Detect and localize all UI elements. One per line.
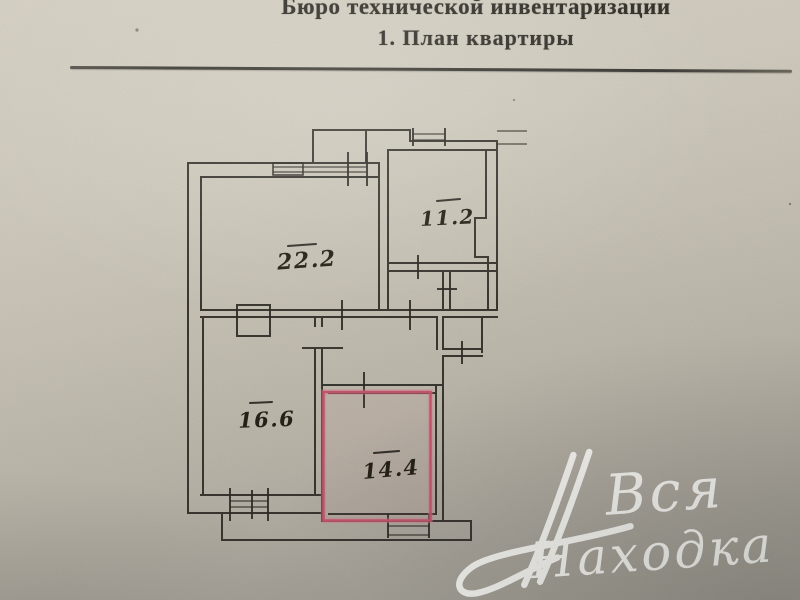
paper-grain-overlay [0, 0, 800, 600]
scanned-page: Бюро технической инвентаризации 1. План … [0, 0, 800, 600]
floor-plan-drawing: 22.2 11.2 16.6 14.4 Вся Находка [0, 0, 800, 600]
